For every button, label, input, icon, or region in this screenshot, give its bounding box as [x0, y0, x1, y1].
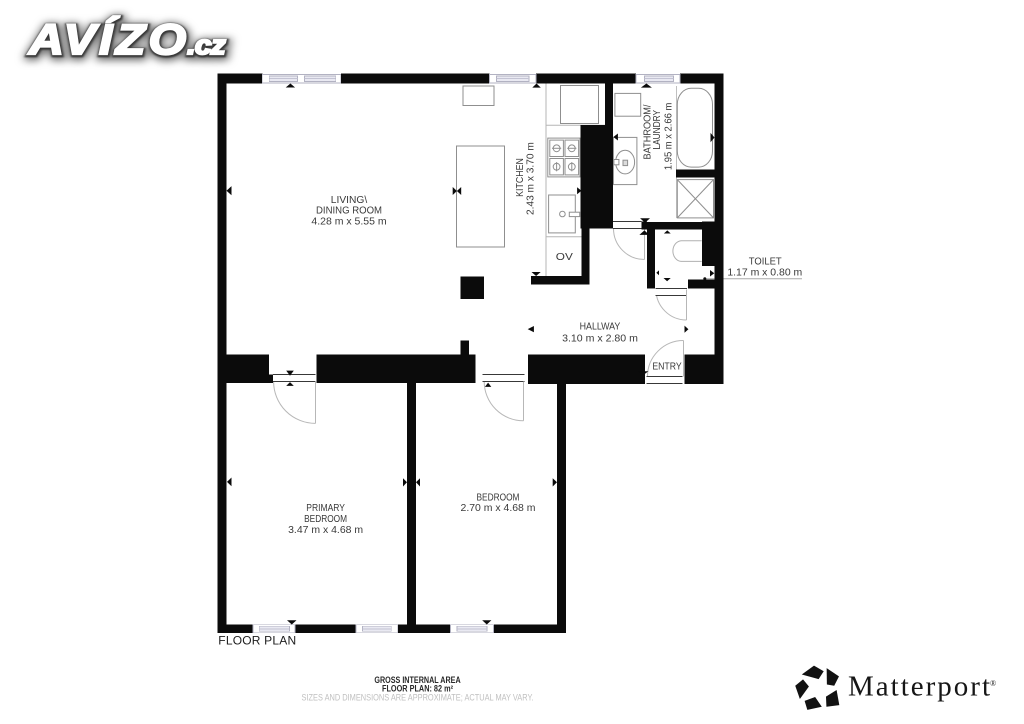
- svg-text:LAUNDRY: LAUNDRY: [652, 110, 663, 150]
- svg-text:FLOOR PLAN: FLOOR PLAN: [218, 634, 296, 648]
- svg-text:4.28 m x 5.55 m: 4.28 m x 5.55 m: [311, 216, 386, 227]
- svg-text:Matterport: Matterport: [848, 671, 992, 703]
- svg-text:1.95 m x 2.66 m: 1.95 m x 2.66 m: [664, 103, 675, 170]
- svg-text:KITCHEN: KITCHEN: [515, 158, 526, 197]
- svg-text:2.70 m x 4.68 m: 2.70 m x 4.68 m: [461, 503, 536, 514]
- svg-text:HALLWAY: HALLWAY: [580, 322, 621, 333]
- svg-text:LIVING\: LIVING\: [331, 195, 367, 206]
- svg-text:BEDROOM: BEDROOM: [477, 492, 520, 503]
- svg-text:3.47 m x 4.68 m: 3.47 m x 4.68 m: [288, 525, 363, 536]
- svg-text:3.10 m x 2.80 m: 3.10 m x 2.80 m: [562, 333, 638, 344]
- svg-text:PRIMARY: PRIMARY: [306, 503, 345, 514]
- svg-text:1.17 m x 0.80 m: 1.17 m x 0.80 m: [727, 268, 802, 279]
- svg-text:DINING ROOM: DINING ROOM: [316, 206, 382, 217]
- svg-text:®: ®: [990, 679, 996, 688]
- svg-text:BEDROOM: BEDROOM: [304, 514, 347, 525]
- svg-text:ENTRY: ENTRY: [652, 361, 681, 372]
- svg-text:TOILET: TOILET: [749, 256, 782, 267]
- svg-text:OV: OV: [556, 252, 573, 263]
- svg-text:2.43 m x 3.70 m: 2.43 m x 3.70 m: [526, 142, 537, 215]
- svg-text:SIZES AND DIMENSIONS ARE APPRO: SIZES AND DIMENSIONS ARE APPROXIMATE; AC…: [302, 693, 534, 703]
